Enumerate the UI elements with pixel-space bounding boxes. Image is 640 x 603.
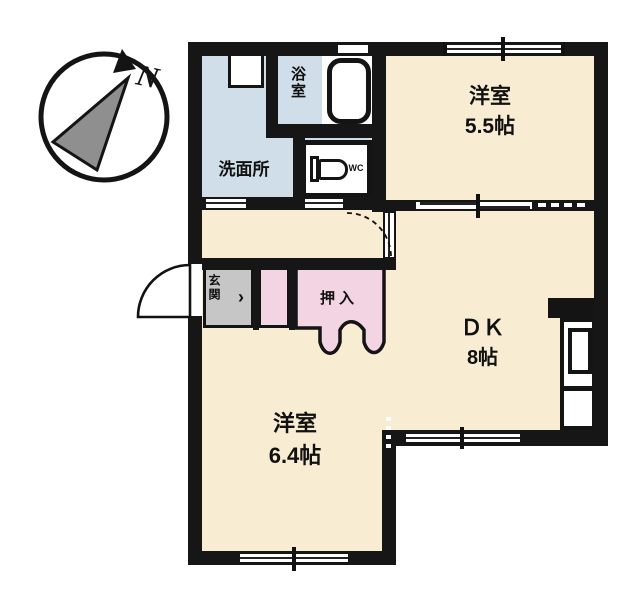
window-room1-tick-center xyxy=(501,37,505,61)
wall-wash-wc-divider xyxy=(293,130,305,200)
sliding-track-dash-2 xyxy=(551,203,559,207)
closet-stub-wall-right xyxy=(289,262,295,330)
floor-plan: WC 玄関 › 押入 xyxy=(0,0,640,603)
dining-kitchen-size: 8帖 xyxy=(400,344,565,373)
dining-kitchen-label: ＤＫ 8帖 xyxy=(400,312,565,373)
toilet-label: WC xyxy=(344,162,368,175)
window-bath-top xyxy=(338,45,368,53)
sliding-door-center-tick xyxy=(476,194,480,218)
western-room-1-label: 洋室 5.5帖 xyxy=(400,82,580,143)
wall-dash-4 xyxy=(386,444,391,448)
entrance-step-mark: › xyxy=(232,284,250,310)
kitchen-unit-divider xyxy=(560,386,596,391)
western-room-1-size: 5.5帖 xyxy=(400,112,580,142)
wall-dash-1 xyxy=(386,417,391,421)
window-room2-tick-center xyxy=(292,547,296,571)
kitchen-sink xyxy=(568,328,592,374)
dining-kitchen-name: ＤＫ xyxy=(400,312,565,344)
wall-right xyxy=(594,42,608,446)
washroom-label: 洗面所 xyxy=(204,158,284,183)
closet-label: 押入 xyxy=(306,288,372,310)
window-room1-tick-left xyxy=(443,42,447,56)
wall-dash-3 xyxy=(386,435,391,439)
entrance-label: 玄関 xyxy=(208,274,220,302)
western-room-2-name: 洋室 xyxy=(205,408,385,440)
sliding-track-dash-1 xyxy=(538,203,546,207)
door-hall-dk-line xyxy=(388,213,390,257)
bathroom-label: 浴室 xyxy=(290,66,305,100)
wall-bath-wc-divider xyxy=(266,124,382,138)
wall-hall-bottom xyxy=(202,258,392,270)
western-room-2-size: 6.4帖 xyxy=(205,440,385,472)
western-room-1-name: 洋室 xyxy=(400,82,580,112)
door-toilet-line xyxy=(305,202,343,204)
wall-dash-2 xyxy=(386,426,391,430)
window-room1-tick-right xyxy=(561,42,565,56)
oshiire-closet-shape xyxy=(294,264,388,364)
window-dk-tick-center xyxy=(460,427,464,449)
sliding-track-dash-3 xyxy=(564,203,572,207)
western-room-2-label: 洋室 6.4帖 xyxy=(205,408,385,472)
bathtub xyxy=(327,58,371,124)
compass: N xyxy=(35,42,180,194)
door-washroom-line xyxy=(206,202,246,204)
sliding-door-leaf-1 xyxy=(420,202,478,205)
closet-stub-wall-left xyxy=(253,262,259,330)
sliding-door-leaf-2 xyxy=(478,206,530,209)
sliding-track-dash-4 xyxy=(577,203,585,207)
door-front-opening xyxy=(190,264,202,316)
hallway-floor xyxy=(202,202,392,264)
wall-wash-bath-divider xyxy=(266,42,278,132)
front-door-swing xyxy=(138,265,190,317)
closet-small-box xyxy=(258,266,290,328)
